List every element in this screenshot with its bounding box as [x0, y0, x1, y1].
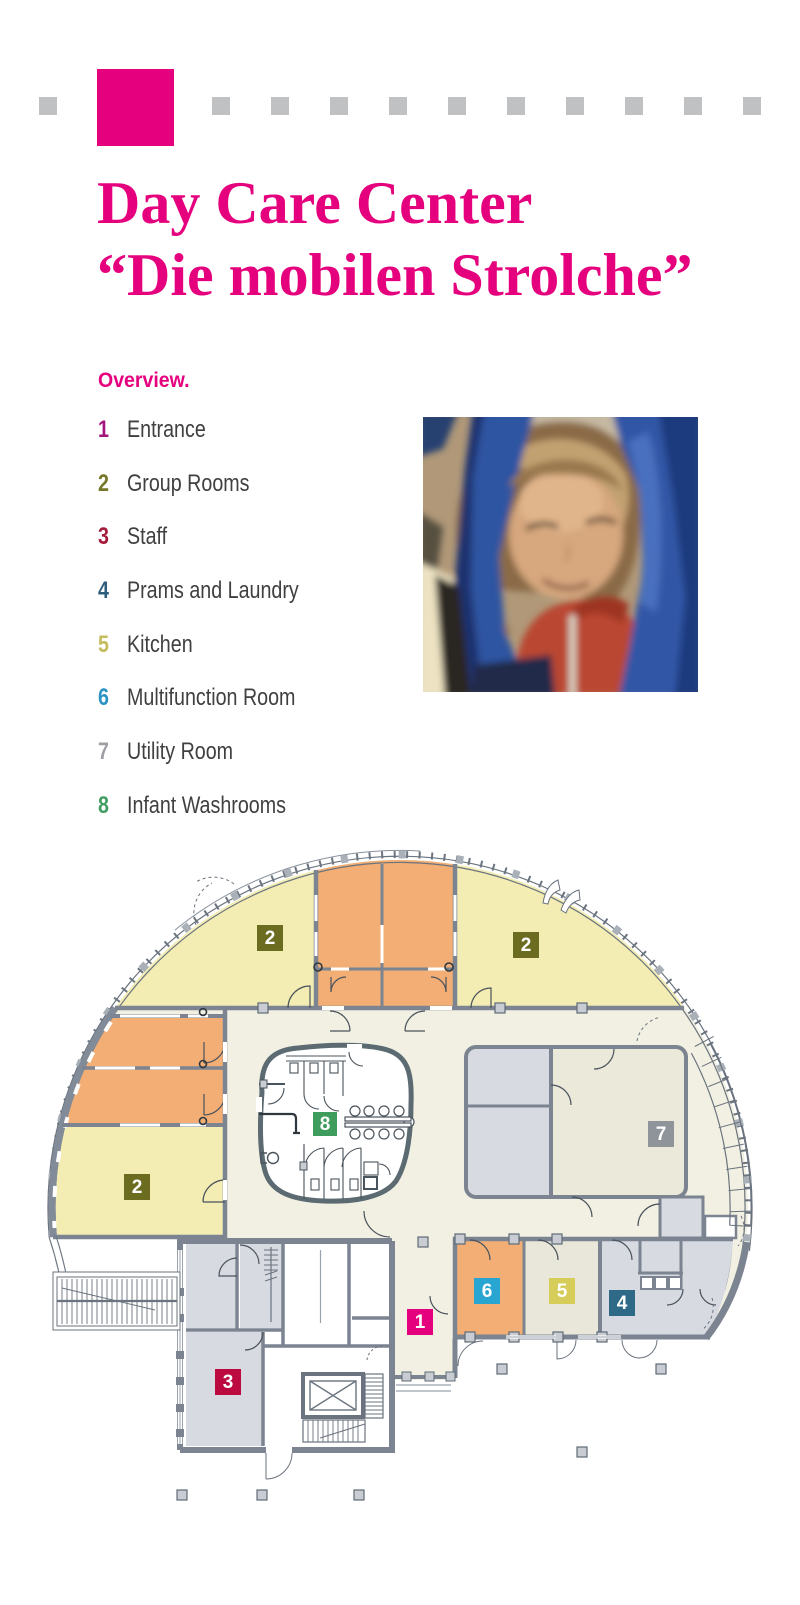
svg-text:2: 2	[521, 935, 532, 956]
svg-text:7: 7	[656, 1124, 667, 1145]
svg-text:4: 4	[617, 1293, 628, 1314]
svg-text:1: 1	[415, 1312, 426, 1333]
svg-text:8: 8	[320, 1114, 331, 1135]
svg-text:2: 2	[265, 928, 276, 949]
svg-text:5: 5	[557, 1281, 568, 1302]
svg-text:6: 6	[482, 1281, 493, 1302]
svg-text:2: 2	[132, 1177, 143, 1198]
svg-text:3: 3	[223, 1372, 234, 1393]
